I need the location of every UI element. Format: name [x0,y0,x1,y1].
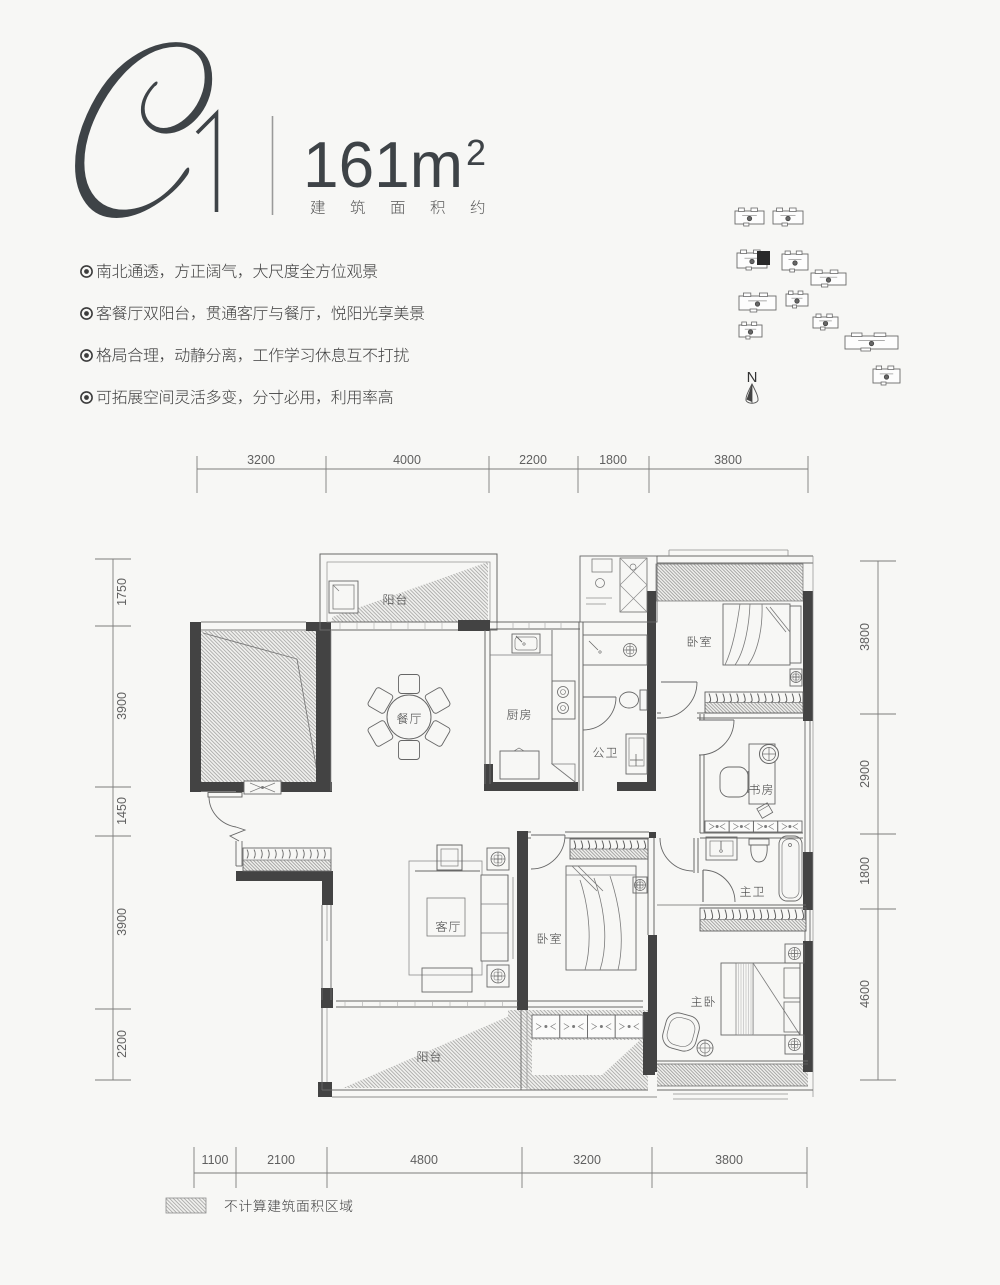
svg-text:3200: 3200 [247,453,275,467]
svg-text:1450: 1450 [115,797,129,825]
svg-text:3900: 3900 [115,908,129,936]
svg-text:161m: 161m [303,128,463,201]
svg-text:1100: 1100 [202,1153,229,1167]
svg-text:2200: 2200 [115,1030,129,1058]
svg-text:3800: 3800 [714,453,742,467]
svg-text:3900: 3900 [115,692,129,720]
svg-text:1750: 1750 [115,578,129,606]
svg-text:3800: 3800 [715,1153,743,1167]
svg-text:2900: 2900 [858,760,872,788]
svg-text:2100: 2100 [267,1153,295,1167]
svg-text:1800: 1800 [599,453,627,467]
svg-text:1800: 1800 [858,857,872,885]
svg-text:4600: 4600 [858,980,872,1008]
svg-text:4800: 4800 [410,1153,438,1167]
svg-text:2200: 2200 [519,453,547,467]
svg-text:3800: 3800 [858,623,872,651]
svg-text:4000: 4000 [393,453,421,467]
svg-text:2: 2 [466,132,486,173]
svg-text:3200: 3200 [573,1153,601,1167]
